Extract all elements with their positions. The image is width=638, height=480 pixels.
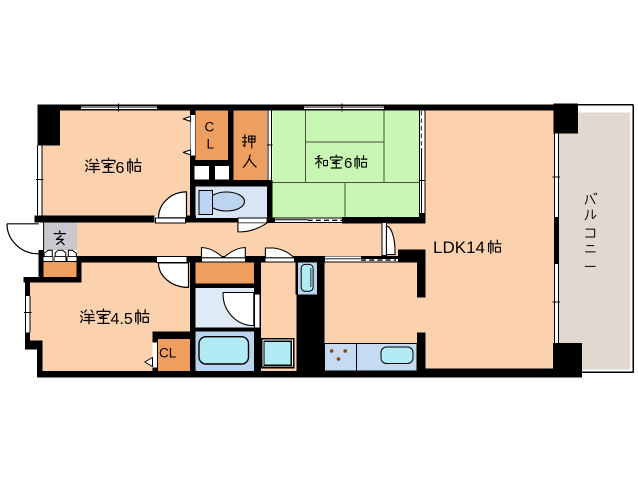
svg-text:6: 6 <box>116 160 125 177</box>
svg-text:LDK14: LDK14 <box>433 238 485 257</box>
svg-text:C: C <box>205 120 215 135</box>
svg-text:CL: CL <box>159 346 177 361</box>
svg-text:L: L <box>207 137 215 152</box>
svg-text:6: 6 <box>344 155 352 172</box>
svg-text:4.5: 4.5 <box>111 311 133 328</box>
